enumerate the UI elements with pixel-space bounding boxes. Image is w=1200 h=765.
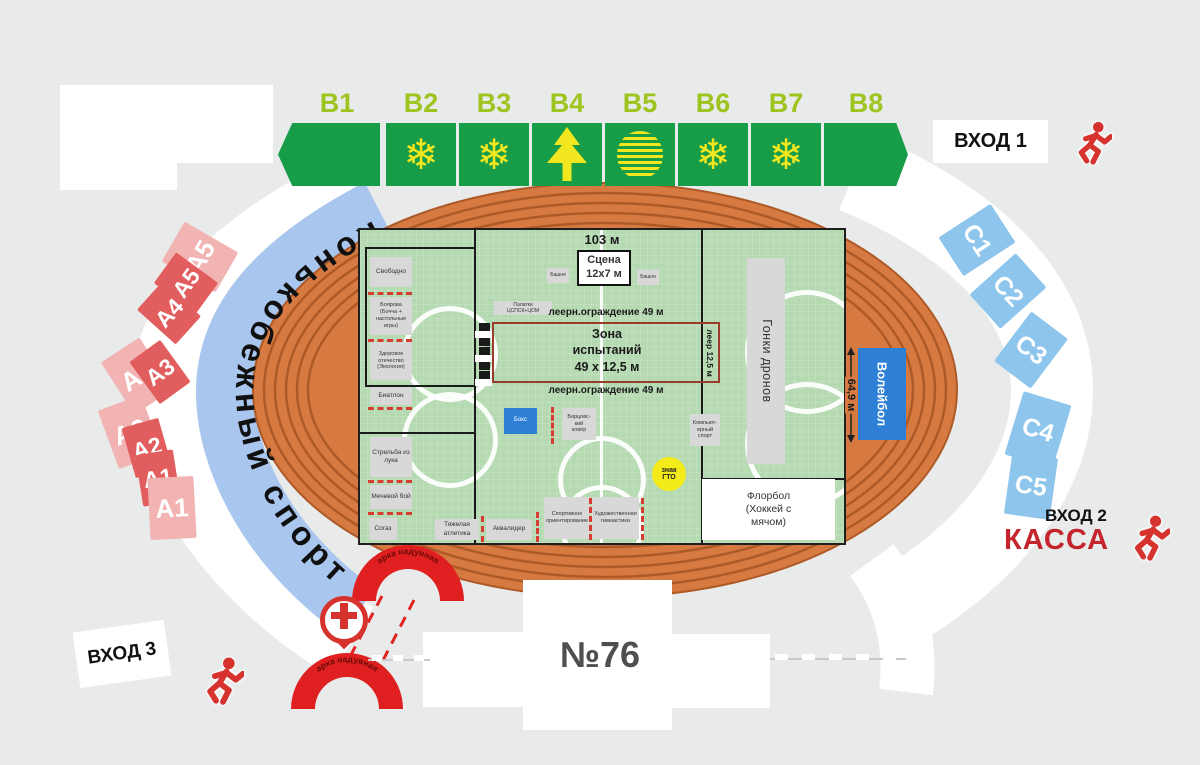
sector-b7[interactable]: ❄ — [751, 123, 821, 186]
sector-label-b8: B8 — [834, 88, 898, 119]
building-top-left — [60, 85, 273, 163]
sector-b1[interactable] — [278, 123, 380, 186]
building-76-left-wing — [423, 632, 523, 707]
sector-label-b7: B7 — [754, 88, 818, 119]
zone-wrestling: Борцовс- кий ковёр — [562, 408, 596, 440]
snowflake-icon: ❄ — [476, 134, 511, 176]
walkway-dashed-line — [377, 600, 414, 672]
sector-b6[interactable]: ❄ — [678, 123, 748, 186]
building-76-number: №76 — [545, 634, 655, 676]
tree-icon — [537, 127, 597, 183]
zone-boxing: Бокс — [504, 408, 537, 434]
sector-b8[interactable] — [824, 123, 908, 186]
zone-orienteering: Спортивное ориентирование — [544, 497, 590, 539]
sector-b2[interactable]: ❄ — [386, 123, 456, 186]
zone-weightlifting: Тяжелая атлетика — [435, 519, 479, 540]
zone-floorball: Флорбол (Хоккей с мячом) — [702, 479, 835, 540]
globe-icon — [617, 131, 663, 179]
partition-line — [474, 230, 476, 543]
red-dashed-divider — [368, 480, 412, 483]
zone-sword: Мечевой бой — [370, 485, 412, 509]
zone-drones: Гонки дронов — [747, 258, 785, 464]
zone-aqualider: Аквалидер — [486, 519, 532, 540]
sector-a1-outer[interactable]: A1 — [147, 476, 196, 540]
red-dashed-divider — [368, 407, 412, 410]
rail-fence-top-label: леерн.ограждение 49 м — [492, 307, 720, 318]
kassa-label: КАССА — [1004, 524, 1124, 557]
stage-box: Сцена 12х7 м — [577, 250, 631, 286]
stadium-map: Конькобежный спорт арка надувная арка на… — [0, 0, 1200, 765]
red-dashed-divider — [589, 498, 592, 540]
marker-tag — [475, 379, 492, 386]
red-dashed-divider — [641, 498, 644, 540]
red-dashed-divider — [368, 292, 412, 295]
sector-label-b2: B2 — [389, 88, 453, 119]
tower-box-left: Башня — [547, 268, 569, 283]
sector-b5[interactable] — [605, 123, 675, 186]
zone-sogaz: Согаз — [369, 518, 397, 540]
sector-label-b1: B1 — [305, 88, 369, 119]
building-top-left-wing — [60, 163, 177, 190]
gto-badge: знак ГТО — [652, 457, 686, 491]
sector-label-b6: B6 — [681, 88, 745, 119]
building-76-right-wing — [672, 634, 770, 708]
pitch-circle — [402, 392, 498, 488]
red-dashed-divider — [481, 516, 484, 542]
zone-biathlon: Биатлон — [370, 387, 412, 405]
runner-icon — [202, 656, 244, 708]
snowflake-icon: ❄ — [403, 134, 438, 176]
tower-box-right: Башня — [637, 270, 659, 285]
fence-dashes — [775, 654, 903, 660]
red-dashed-divider — [536, 512, 539, 542]
sector-label-b5: B5 — [608, 88, 672, 119]
sector-label-b3: B3 — [462, 88, 526, 119]
measure-103m-label: 103 м — [567, 232, 637, 247]
medical-cross-icon — [340, 603, 348, 629]
zone-archery: Стрельба из лука — [370, 437, 412, 477]
zone-gymnastics: Художественная гимнастика — [592, 497, 639, 539]
runner-icon — [1074, 120, 1112, 168]
fence-dashes — [372, 655, 428, 661]
test-zone-label: Зона испытаний 49 х 12,5 м — [532, 326, 682, 375]
zone-volleyball: Волейбол — [858, 348, 906, 440]
sector-b3[interactable]: ❄ — [459, 123, 529, 186]
zone-boyarova: Боярова (Бочча + настольные игры) — [370, 297, 412, 335]
snowflake-icon: ❄ — [695, 134, 730, 176]
red-dashed-divider — [551, 407, 554, 444]
rail-fence-bottom-label: леерн.ограждение 49 м — [492, 385, 720, 396]
red-dashed-divider — [368, 339, 412, 342]
sector-b4[interactable] — [532, 123, 602, 186]
zone-free: Свободно — [370, 257, 412, 287]
red-dashed-divider — [368, 512, 412, 515]
measure-64m-label: 64,9 м — [838, 374, 864, 416]
infield: Свободно Боярова (Бочча + настольные игр… — [358, 228, 846, 545]
entrance-1-label: ВХОД 1 — [933, 120, 1048, 163]
zone-zdorovoe: Здоровое отечество (Экология) — [370, 342, 412, 380]
rail-side-label: леер 12,5 м — [704, 326, 716, 380]
concourse-band-sweep — [872, 560, 908, 692]
partition-line — [360, 432, 474, 434]
marker-tag — [475, 331, 492, 338]
runner-icon — [1130, 514, 1170, 564]
zone-esports: Компьют- ерный спорт — [690, 414, 720, 446]
marker-tag — [475, 355, 492, 362]
sector-label-b4: B4 — [535, 88, 599, 119]
snowflake-icon: ❄ — [768, 134, 803, 176]
